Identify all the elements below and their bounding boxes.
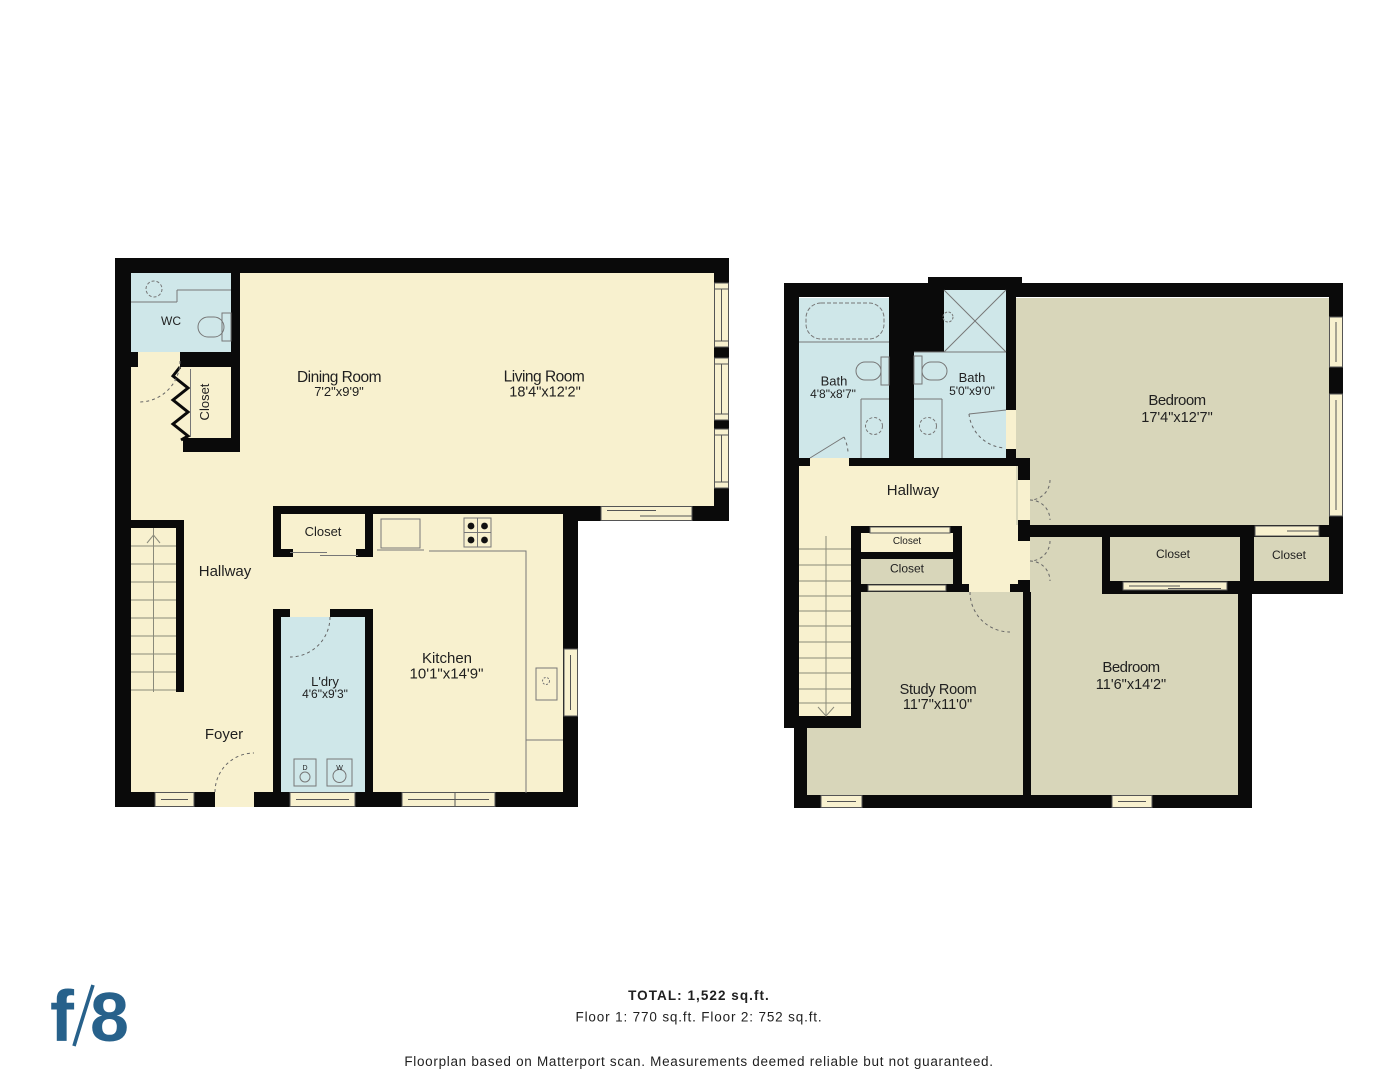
svg-text:18'4"x12'2": 18'4"x12'2" xyxy=(509,385,580,401)
svg-text:f: f xyxy=(50,977,75,1057)
svg-text:17'4"x12'7": 17'4"x12'7" xyxy=(1141,410,1212,426)
svg-text:4'6"x9'3": 4'6"x9'3" xyxy=(302,687,348,701)
svg-text:TOTAL: 1,522 sq.ft.: TOTAL: 1,522 sq.ft. xyxy=(628,988,770,1003)
svg-text:Hallway: Hallway xyxy=(199,563,252,580)
svg-text:Closet: Closet xyxy=(890,562,925,576)
svg-text:Floor 1: 770 sq.ft. Floor 2: 7: Floor 1: 770 sq.ft. Floor 2: 752 sq.ft. xyxy=(575,1010,822,1025)
svg-text:Hallway: Hallway xyxy=(887,482,940,499)
svg-text:Foyer: Foyer xyxy=(205,726,243,743)
svg-text:Bedroom: Bedroom xyxy=(1148,392,1205,409)
svg-text:Closet: Closet xyxy=(1272,548,1307,562)
svg-text:8: 8 xyxy=(90,978,129,1056)
svg-text:Bath: Bath xyxy=(959,370,986,385)
svg-text:Bedroom: Bedroom xyxy=(1102,659,1159,676)
svg-text:7'2"x9'9": 7'2"x9'9" xyxy=(314,384,364,399)
svg-text:Kitchen: Kitchen xyxy=(422,650,472,667)
svg-text:W: W xyxy=(336,765,343,772)
svg-text:Closet: Closet xyxy=(1156,547,1191,561)
svg-text:D: D xyxy=(302,765,307,772)
svg-text:Living Room: Living Room xyxy=(504,369,585,386)
svg-text:4'8"x8'7": 4'8"x8'7" xyxy=(810,387,856,401)
svg-text:5'0"x9'0": 5'0"x9'0" xyxy=(949,384,995,398)
svg-text:11'7"x11'0": 11'7"x11'0" xyxy=(903,697,972,713)
svg-text:Closet: Closet xyxy=(305,524,342,539)
svg-text:WC: WC xyxy=(161,314,181,328)
svg-text:Closet: Closet xyxy=(893,536,922,547)
svg-text:Floorplan based on Matterport: Floorplan based on Matterport scan. Meas… xyxy=(404,1054,993,1069)
svg-text:Closet: Closet xyxy=(197,383,212,420)
svg-text:11'6"x14'2": 11'6"x14'2" xyxy=(1096,677,1166,693)
svg-text:Study Room: Study Room xyxy=(900,682,977,698)
svg-text:10'1"x14'9": 10'1"x14'9" xyxy=(410,666,484,683)
